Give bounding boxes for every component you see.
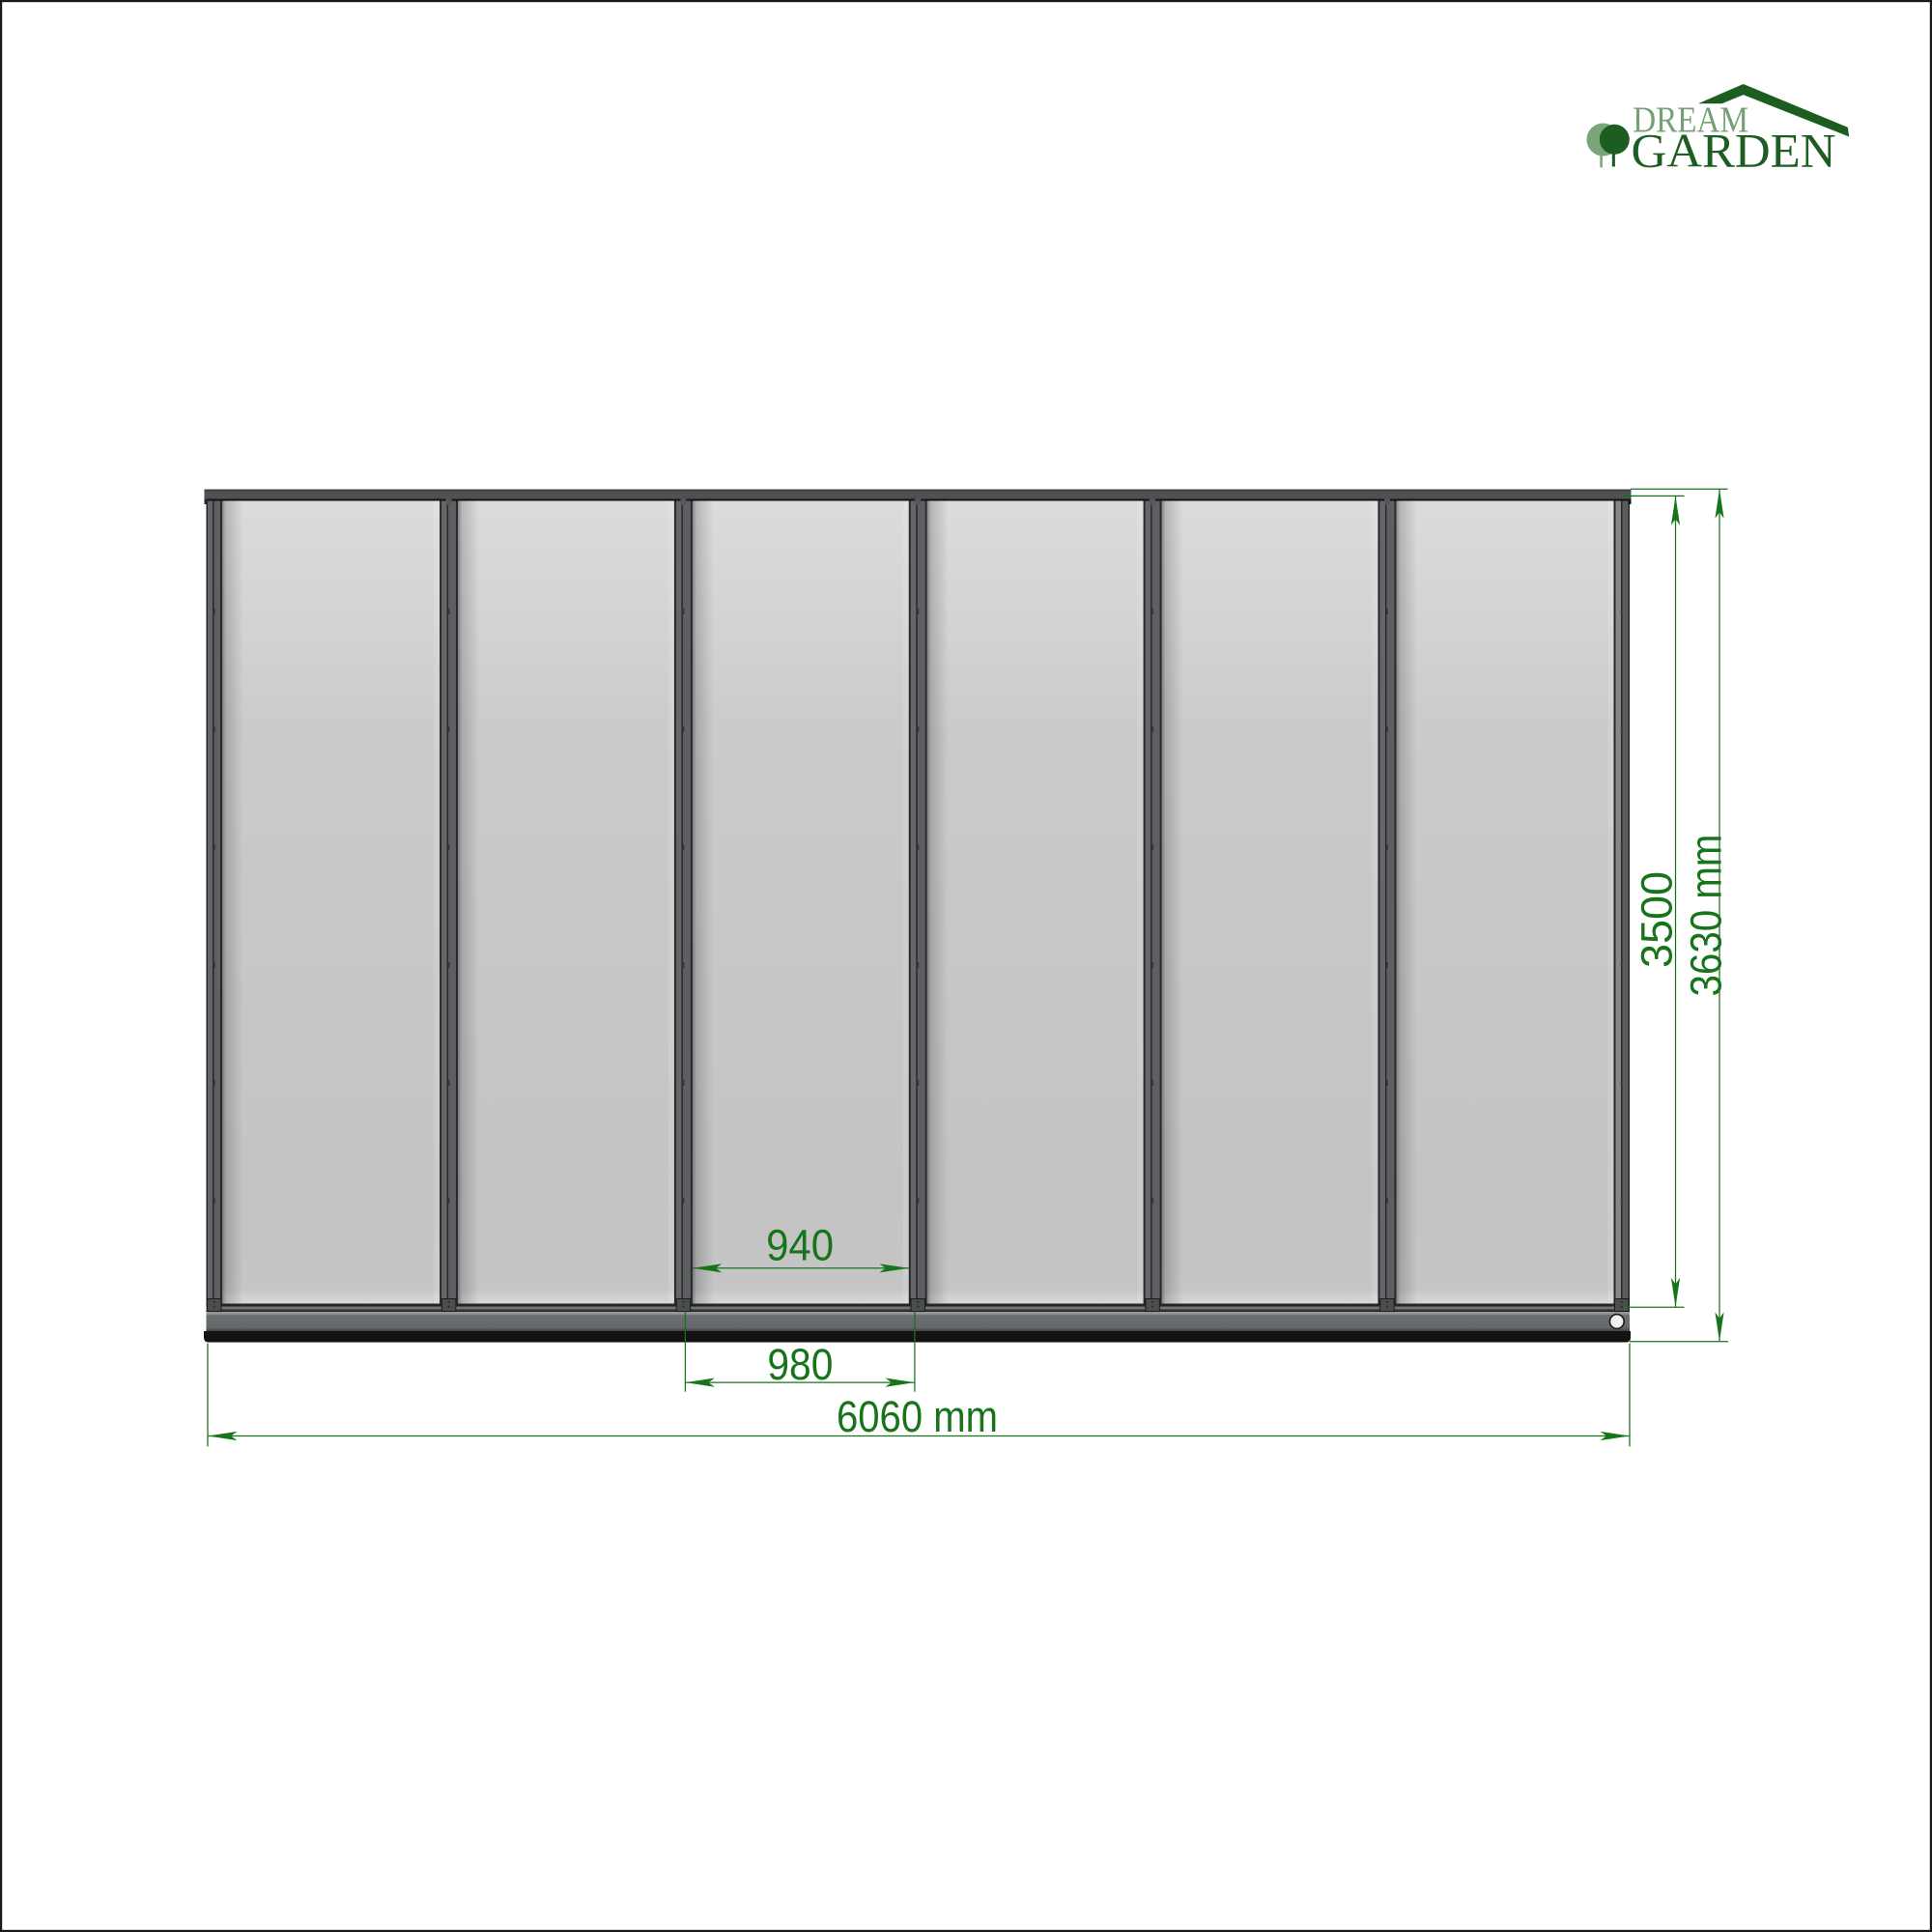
svg-text:GARDEN: GARDEN xyxy=(1632,124,1836,178)
svg-text:940: 940 xyxy=(766,1221,834,1270)
svg-text:980: 980 xyxy=(767,1340,833,1389)
svg-text:3630 mm: 3630 mm xyxy=(1682,835,1731,997)
svg-text:3500: 3500 xyxy=(1633,871,1682,968)
svg-text:6060 mm: 6060 mm xyxy=(837,1392,998,1441)
